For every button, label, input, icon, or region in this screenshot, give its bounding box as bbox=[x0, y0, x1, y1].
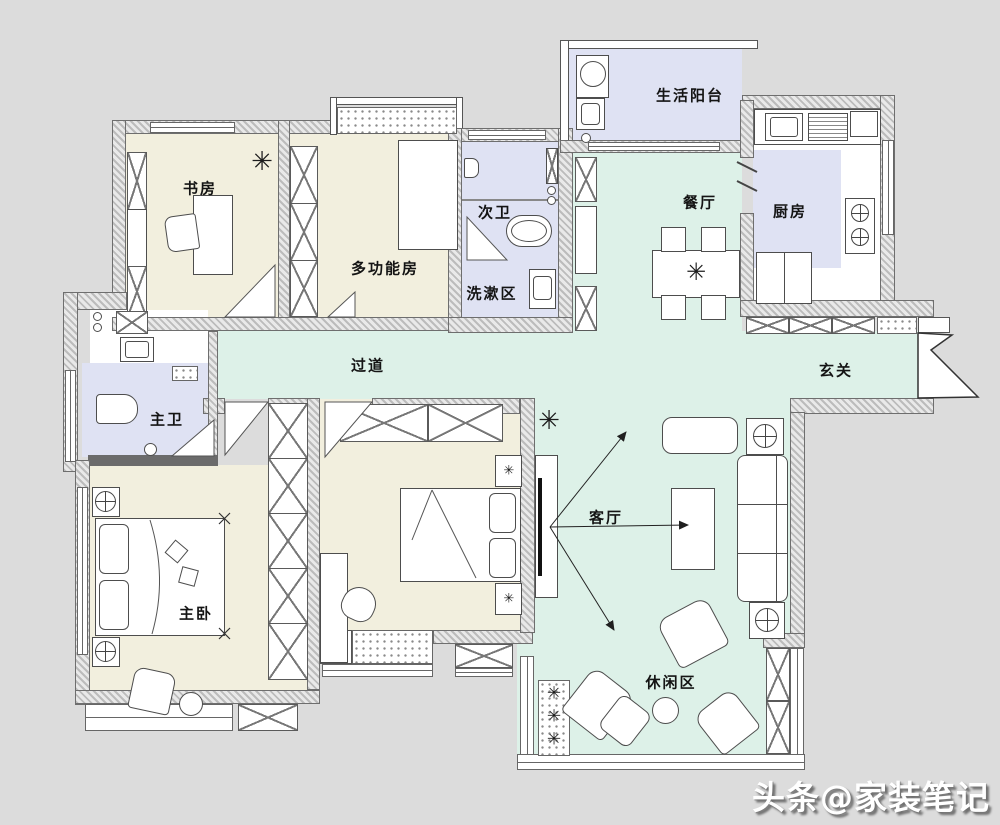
floor-plan: ✳ ✳ ✳ ✳ ✳ ✳ ✳ ✳ 书房 多功能房 次卫 bbox=[0, 0, 1000, 825]
study-closet-1 bbox=[127, 152, 147, 210]
bed2-pillow-1 bbox=[489, 493, 516, 533]
label-dining: 餐厅 bbox=[683, 192, 717, 213]
master-wardrobe-1 bbox=[268, 403, 308, 459]
label-study: 书房 bbox=[183, 178, 217, 199]
kitchen-fridge bbox=[756, 252, 812, 304]
plant-bed2-nightstand-1: ✳ bbox=[504, 465, 515, 478]
kitchen-window bbox=[882, 140, 894, 235]
plant-leisure-3: ✳ bbox=[547, 732, 561, 749]
shoe-cabinet-1 bbox=[746, 317, 789, 334]
label-leisure: 休闲区 bbox=[645, 672, 696, 693]
watermark: 头条@家装笔记 bbox=[752, 771, 990, 819]
hallway-floor bbox=[208, 331, 918, 399]
master-ottoman bbox=[179, 692, 203, 716]
entry-step bbox=[918, 317, 950, 333]
wall-bath1-bottom bbox=[88, 455, 218, 466]
label-service-balcony: 生活阳台 bbox=[656, 85, 724, 106]
wall-bath2-dining bbox=[558, 128, 573, 333]
master-lamp-1 bbox=[95, 491, 116, 512]
leisure-cabinet-2 bbox=[766, 701, 790, 754]
sofa-lamp-2 bbox=[755, 608, 779, 632]
kitchen-hood bbox=[850, 111, 878, 137]
plant-study: ✳ bbox=[251, 149, 273, 175]
label-bath2: 次卫 bbox=[478, 202, 512, 223]
label-multi: 多功能房 bbox=[351, 258, 419, 279]
master-chair bbox=[127, 666, 177, 716]
sofa bbox=[737, 455, 788, 602]
label-hallway: 过道 bbox=[351, 355, 385, 376]
bath1-toilet bbox=[96, 394, 138, 424]
multi-bed bbox=[398, 140, 458, 250]
bed2-bay-window bbox=[322, 664, 433, 677]
leisure-round-table bbox=[652, 697, 679, 724]
dining-chair-4 bbox=[701, 295, 726, 320]
multi-bay-sill bbox=[337, 107, 457, 134]
study-chair bbox=[164, 213, 201, 253]
bath2-toilet bbox=[464, 158, 479, 178]
balcony-washer-drum bbox=[580, 61, 606, 87]
master-pillow-1 bbox=[99, 524, 129, 574]
plant-living: ✳ bbox=[538, 408, 560, 434]
nook-knob-2 bbox=[93, 323, 102, 332]
master-lamp-2 bbox=[95, 641, 116, 662]
label-wash: 洗漱区 bbox=[466, 283, 517, 304]
kitchen-burner-2 bbox=[851, 228, 869, 246]
wall-kitchen-left-upper bbox=[740, 100, 754, 158]
dining-cabinet-3 bbox=[575, 286, 597, 331]
balcony-slider-window bbox=[588, 142, 720, 151]
plant-bed2-nightstand-2: ✳ bbox=[504, 593, 515, 606]
tv-screen bbox=[538, 478, 542, 576]
label-foyer: 玄关 bbox=[819, 360, 853, 381]
multi-closet-1 bbox=[290, 146, 318, 204]
shoe-cabinet-dotted bbox=[877, 317, 917, 334]
bed2-bay-sill bbox=[352, 630, 433, 664]
multi-bay-parapet-left bbox=[330, 97, 337, 135]
plant-leisure-1: ✳ bbox=[547, 686, 561, 703]
wall-kitchen-left-lower bbox=[740, 213, 754, 305]
plant-dining: ✳ bbox=[686, 260, 706, 284]
bath2-pipe-2 bbox=[547, 196, 556, 205]
multi-closet-2 bbox=[290, 203, 318, 261]
dining-cabinet-2 bbox=[575, 206, 597, 274]
master-door bbox=[225, 402, 268, 455]
kitchen-burner-1 bbox=[851, 204, 869, 222]
sofa-lamp-1 bbox=[753, 424, 777, 448]
bath1-floor-sink bbox=[144, 443, 157, 456]
study-desk bbox=[193, 195, 233, 275]
label-master: 主卧 bbox=[179, 603, 213, 624]
master-wardrobe-5 bbox=[268, 623, 308, 680]
bath2-window bbox=[468, 130, 546, 140]
wall-foyer-bottom bbox=[790, 398, 934, 414]
bed2-wardrobe-2 bbox=[428, 404, 503, 442]
coffee-table bbox=[671, 488, 715, 570]
balcony-parapet-top bbox=[560, 40, 758, 49]
wall-bed2-living bbox=[520, 398, 535, 633]
label-bath1: 主卫 bbox=[150, 409, 184, 430]
bath1-mat bbox=[172, 366, 198, 381]
bed2-pillow-2 bbox=[489, 538, 516, 578]
bath1-window bbox=[65, 370, 76, 462]
master-bay-box bbox=[238, 704, 298, 731]
multi-closet-3 bbox=[290, 260, 318, 317]
wall-study-bottom bbox=[112, 317, 460, 331]
label-living: 客厅 bbox=[589, 507, 623, 528]
balcony-parapet-left bbox=[560, 40, 569, 143]
wall-bed2-bottom-right bbox=[433, 630, 533, 644]
bed2-pier-box bbox=[455, 644, 513, 668]
wash-sink bbox=[533, 276, 552, 300]
wall-living-right bbox=[790, 412, 805, 648]
bed2-wardrobe-1 bbox=[340, 404, 428, 442]
master-wardrobe-2 bbox=[268, 458, 308, 514]
wall-wash-bottom bbox=[448, 317, 573, 333]
shoe-cabinet-3 bbox=[832, 317, 875, 334]
wall-master-bed2 bbox=[307, 398, 320, 690]
master-wardrobe-4 bbox=[268, 568, 308, 624]
entry-bench bbox=[662, 417, 738, 454]
shoe-cabinet-2 bbox=[789, 317, 832, 334]
bath2-pipe-1 bbox=[547, 186, 556, 195]
leisure-cabinet-1 bbox=[766, 648, 790, 701]
dining-chair-3 bbox=[661, 295, 686, 320]
nook-box bbox=[116, 311, 148, 334]
leisure-window-left bbox=[520, 656, 534, 756]
bath2-duct bbox=[546, 148, 558, 184]
wall-kitchen-top bbox=[742, 95, 894, 109]
kitchen-sink-basin bbox=[770, 117, 798, 137]
study-closet-2 bbox=[127, 209, 147, 267]
balcony-sink-basin bbox=[581, 103, 600, 125]
wall-bath1-right bbox=[208, 331, 218, 458]
study-closet-3 bbox=[127, 266, 147, 317]
balcony-drain bbox=[581, 133, 591, 143]
dining-cabinet-1 bbox=[575, 157, 597, 202]
bed2-pier-window bbox=[455, 668, 513, 677]
kitchen-drainboard bbox=[808, 113, 848, 141]
leisure-window-bottom bbox=[517, 754, 805, 770]
nook-knob-1 bbox=[93, 312, 102, 321]
master-wardrobe-3 bbox=[268, 513, 308, 569]
bath1-sink-basin bbox=[125, 341, 149, 358]
entrance-door-arrow bbox=[918, 333, 978, 398]
master-window-left bbox=[77, 487, 88, 655]
dining-chair-1 bbox=[661, 227, 686, 252]
master-pillow-2 bbox=[99, 580, 129, 630]
dining-chair-2 bbox=[701, 227, 726, 252]
plant-leisure-2: ✳ bbox=[547, 709, 561, 726]
wall-step-left bbox=[77, 292, 127, 310]
wall-study-left bbox=[112, 120, 126, 310]
study-window bbox=[150, 122, 235, 133]
label-kitchen: 厨房 bbox=[773, 201, 807, 222]
wall-study-multi bbox=[278, 120, 290, 330]
leisure-window-right bbox=[790, 648, 804, 756]
bath2-bathtub-inner bbox=[511, 220, 547, 242]
multi-bay-parapet-top bbox=[330, 97, 463, 105]
